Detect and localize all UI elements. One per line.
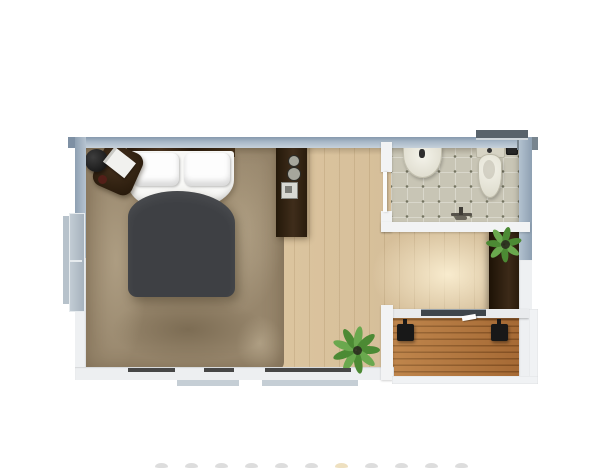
bathroom-west-wall-upper [381,142,392,172]
decor-bottle [288,155,300,167]
window-sash-divider [70,260,82,262]
bottom-window-2 [204,368,234,372]
floorplan-canvas [0,0,610,474]
faint-mark [335,463,348,468]
top-wall-window [476,130,528,140]
faint-mark [425,463,438,468]
faint-mark [215,463,228,468]
bottom-window-sill-2 [262,379,358,386]
sink-faucet-icon [419,149,425,158]
bottom-window-3 [265,368,351,372]
faint-mark [365,463,378,468]
faint-mark [185,463,198,468]
deck-stool-right [491,324,508,341]
top-wall [68,137,538,148]
bed-duvet [128,191,235,297]
bathroom-door [383,172,387,212]
pillow-right [184,153,230,186]
potted-plant-on-wardrobe [486,225,524,263]
bottom-window-sill-1 [177,379,239,386]
floor-faucet-handle [459,207,463,215]
deck-bottom-rail [392,376,538,384]
flush-button [487,148,492,153]
faint-mark [275,463,288,468]
bottom-window-1 [128,368,175,372]
deck-stool-left [397,324,414,341]
sliding-door [421,309,486,316]
faint-mark [305,463,318,468]
deck-west-wall [381,305,393,380]
console-cabinet [276,142,307,237]
faint-mark [245,463,258,468]
decor-bowl [287,167,301,181]
floor-faucet-base [455,216,467,220]
left-wall-window [69,213,85,312]
faint-mark [155,463,168,468]
decor-tray [281,182,298,199]
mug [98,175,107,184]
faint-mark [395,463,408,468]
faint-mark [455,463,468,468]
deck-right-rail [529,309,538,380]
